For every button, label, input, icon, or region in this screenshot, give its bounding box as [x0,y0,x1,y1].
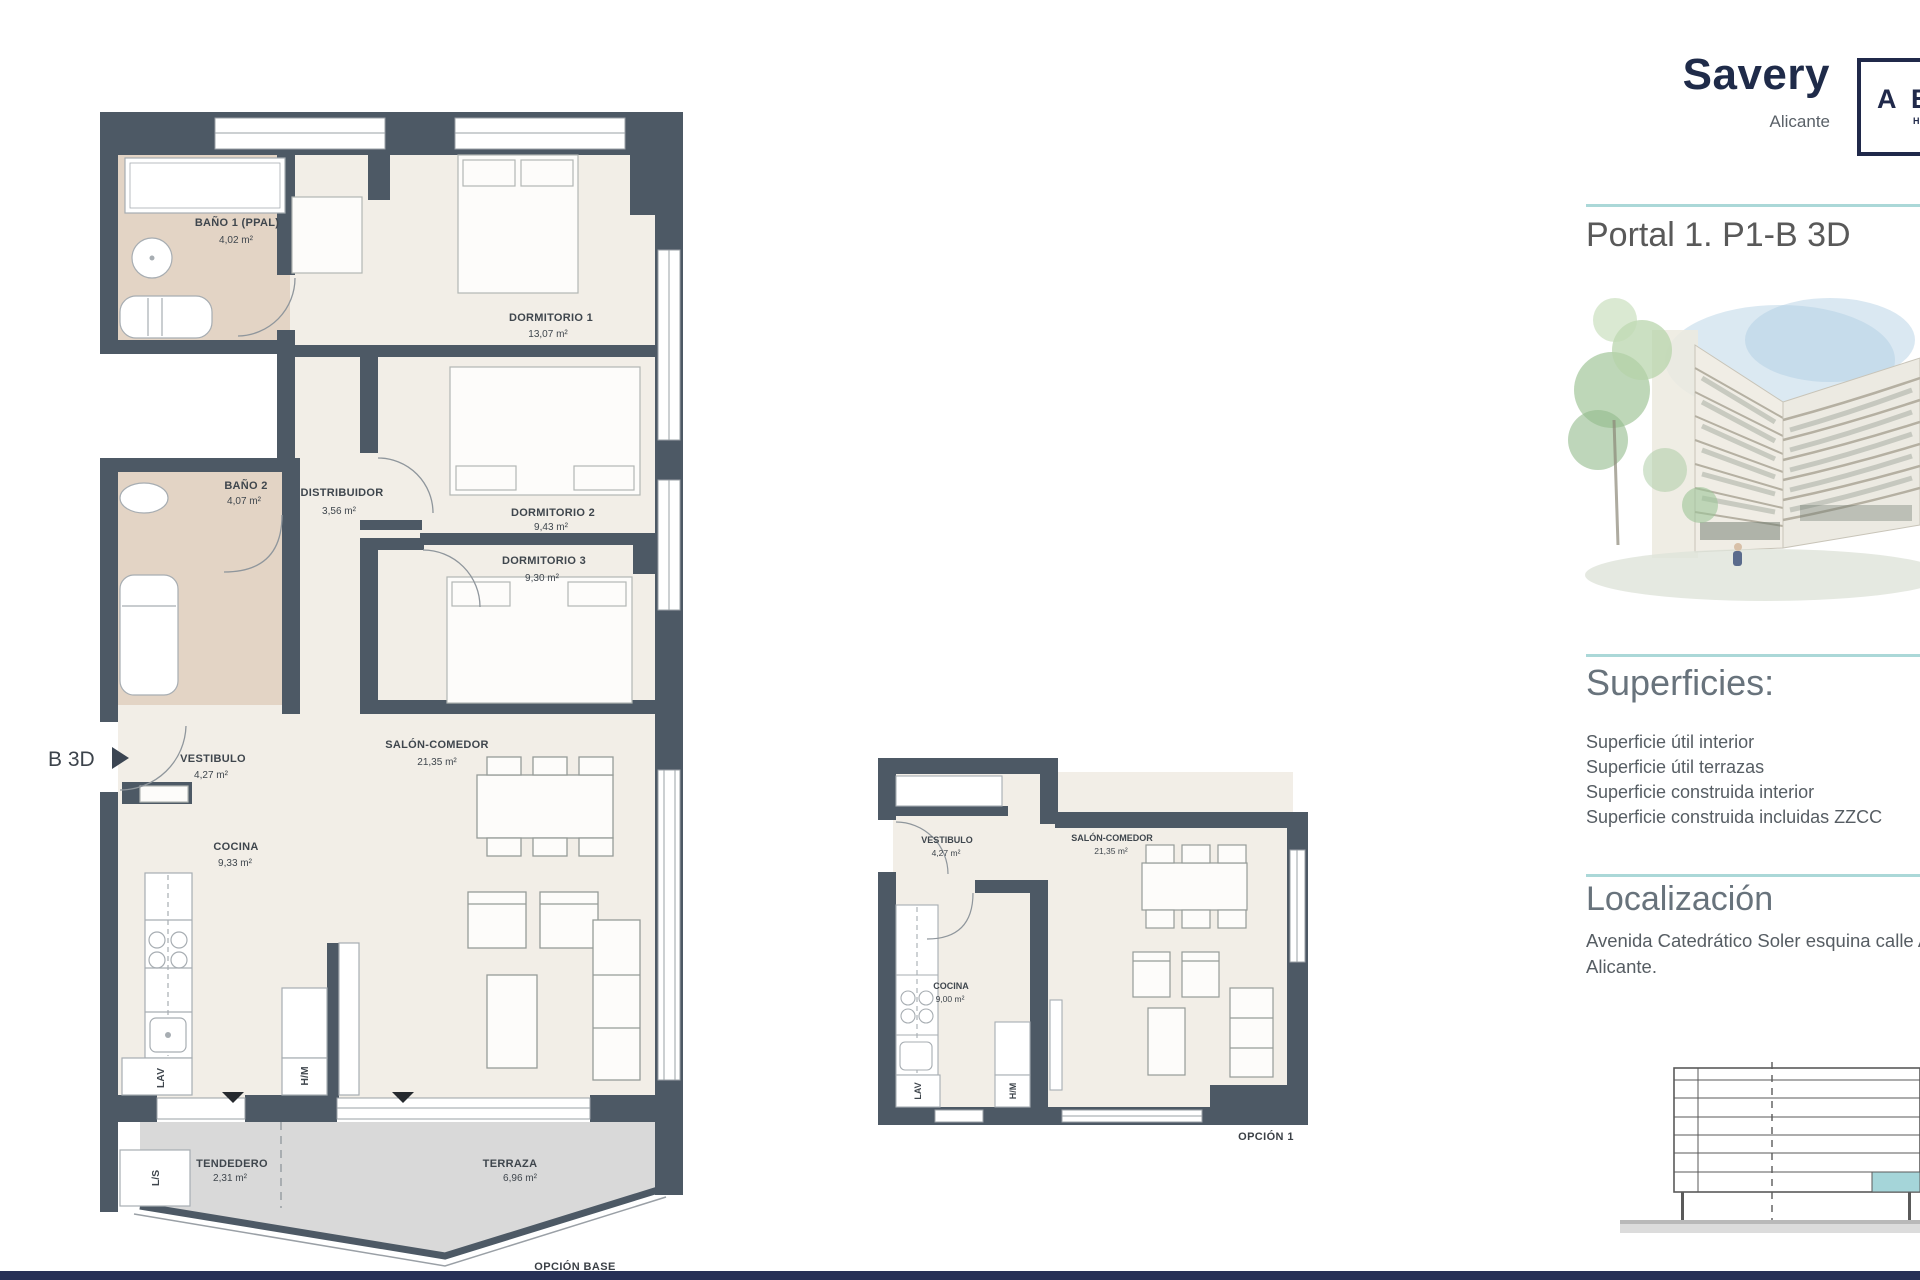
kitchen-sink [900,1042,932,1070]
room-area: 6,96 m² [503,1173,538,1184]
room-area: 4,27 m² [932,848,961,858]
room-label: DISTRIBUIDOR [300,487,383,499]
portal-title: Portal 1. P1-B 3D [1586,216,1851,255]
door-leaf [339,943,359,1095]
localizacion-text: Avenida Catedrático Soler esquina calle … [1586,928,1920,980]
plans-canvas: B 3D BAÑO 1 (PPAL) 4,02 m² DORMITORIO 1 … [0,0,1920,1280]
room-area: 9,43 m² [534,522,569,533]
room-label: VESTIBULO [180,753,246,765]
hall-closet [896,776,1002,806]
divider-line [1586,204,1920,207]
closet-label-lav: LAV [913,1082,923,1099]
sink-bano2 [120,483,168,513]
entrance-marker: B 3D [48,747,129,771]
divider-line [1586,874,1920,877]
room-label: COCINA [933,981,969,991]
room-label: COCINA [213,841,258,853]
superficies-item: Superficie construida incluidas ZZCC [1586,805,1882,830]
brand-block: Savery Alicante [1586,52,1830,132]
address-line: Avenida Catedrático Soler esquina calle … [1586,928,1920,954]
brand-name: Savery [1586,52,1830,98]
terrace-floor [140,1122,658,1256]
room-label: DORMITORIO 3 [502,555,586,567]
superficies-item: Superficie construida interior [1586,780,1882,805]
room-area: 4,02 m² [219,235,254,246]
building-render [1568,298,1920,601]
superficies-item: Superficie útil interior [1586,730,1882,755]
room-area: 4,27 m² [194,770,229,781]
room-label: TERRAZA [483,1158,538,1170]
shower [125,158,285,213]
dining-table [1142,863,1247,910]
entrance-marker-label: B 3D [48,748,95,771]
superficies-heading: Superficies: [1586,662,1774,704]
developer-logo: A E H [1857,58,1920,156]
bathtub-bano1 [120,296,212,338]
room-label: SALÓN-COMEDOR [385,738,489,751]
room-label: SALÓN-COMEDOR [1071,832,1153,843]
armchair [1133,952,1170,997]
brand-city: Alicante [1586,112,1830,132]
room-label: BAÑO 2 [224,479,267,492]
room-area: 9,00 m² [936,994,965,1004]
closet-label-lav: LAV [155,1068,167,1088]
page: { "brand": { "name": "Savery", "city": "… [0,0,1920,1280]
closet-label-hm: H/M [1008,1083,1018,1100]
room-label: DORMITORIO 1 [509,312,593,324]
divider-line [1586,654,1920,657]
room-area: 21,35 m² [1094,846,1128,856]
closet-label-ls: L/S [150,1170,162,1186]
address-line: Alicante. [1586,954,1920,980]
room-area: 2,31 m² [213,1173,248,1184]
room-area: 21,35 m² [417,757,457,768]
dining-table [477,775,613,838]
person-figure [1733,543,1742,566]
coffee-table [487,975,537,1068]
room-label: DORMITORIO 2 [511,507,595,519]
armchair [540,892,598,948]
bottom-accent-bar [0,1271,1920,1280]
room-area: 3,56 m² [322,506,357,517]
entry-closet [140,786,188,802]
superficies-list: Superficie útil interior Superficie útil… [1586,730,1882,830]
elevation-unit-highlight [1872,1172,1920,1192]
localizacion-heading: Localización [1586,880,1773,919]
superficies-item: Superficie útil terrazas [1586,755,1882,780]
logo-letter: A [1877,84,1897,115]
room-label: TENDEDERO [196,1158,268,1170]
armchair [468,892,526,948]
coffee-table [1148,1008,1185,1075]
closet-label-hm: H/M [299,1066,311,1086]
main-floor-plan: B 3D BAÑO 1 (PPAL) 4,02 m² DORMITORIO 1 … [48,112,788,1280]
room-area: 13,07 m² [528,329,568,340]
option-floor-plan: VESTIBULO 4,27 m² SALÓN-COMEDOR 21,35 m²… [878,758,1308,1143]
hm-closet-upper [282,988,327,1058]
building-elevation [1620,1062,1920,1233]
room-label: VESTIBULO [921,835,973,845]
exterior-notch [100,353,277,458]
sofa [1230,988,1273,1077]
door-leaf [1050,1000,1062,1090]
bathtub-bano2 [120,575,178,695]
room-label: BAÑO 1 (PPAL) [195,216,279,229]
wardrobe-dorm1 [292,197,362,273]
sofa [593,920,640,1080]
room-area: 4,07 m² [227,496,262,507]
room-area: 9,33 m² [218,858,253,869]
ground-line [1620,1220,1920,1224]
logo-subtext: H [1913,116,1920,126]
armchair [1182,952,1219,997]
room-area: 9,30 m² [525,573,560,584]
logo-letter: E [1911,84,1920,115]
hm-closet-upper [995,1022,1030,1075]
option-1-label: OPCIÓN 1 [1238,1130,1294,1143]
